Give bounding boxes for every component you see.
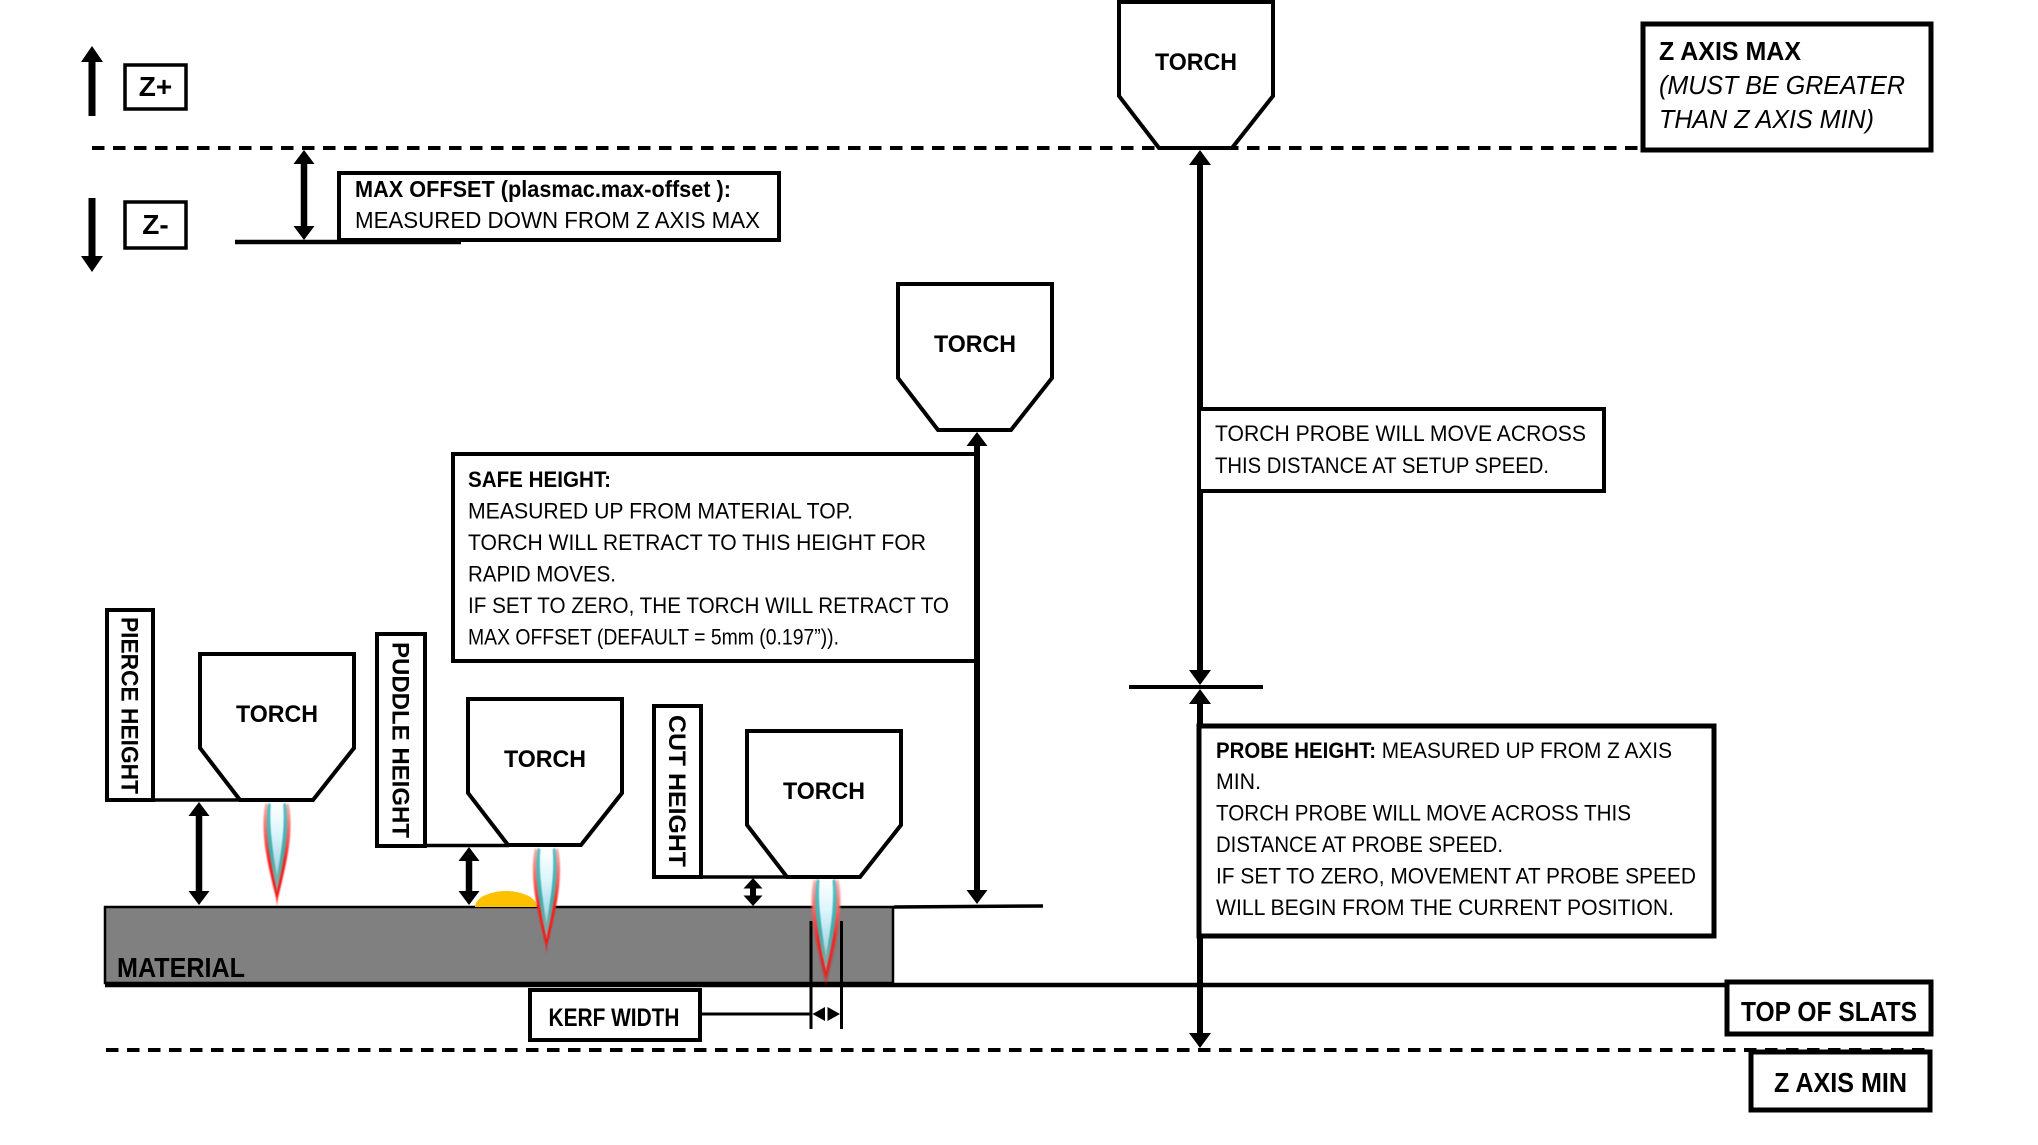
svg-text:PUDDLE HEIGHT: PUDDLE HEIGHT (387, 642, 414, 838)
svg-text:MAX OFFSET (DEFAULT = 5mm (0.1: MAX OFFSET (DEFAULT = 5mm (0.197”)). (468, 625, 839, 650)
svg-text:TORCH: TORCH (236, 701, 318, 728)
svg-text:TORCH PROBE WILL MOVE ACROSS T: TORCH PROBE WILL MOVE ACROSS THIS (1216, 801, 1631, 826)
svg-text:IF SET TO ZERO, MOVEMENT AT P: IF SET TO ZERO, MOVEMENT AT PROBE SPEED (1216, 864, 1696, 889)
svg-text:TORCH: TORCH (783, 778, 865, 805)
svg-text:THAN Z AXIS MIN): THAN Z AXIS MIN) (1659, 104, 1874, 134)
svg-text:CUT HEIGHT: CUT HEIGHT (663, 715, 690, 867)
svg-text:RAPID MOVES.: RAPID MOVES. (468, 562, 616, 587)
svg-text:IF SET TO ZERO, THE TORCH WILL: IF SET TO ZERO, THE TORCH WILL RETRACT T… (468, 593, 949, 618)
svg-text:Z+: Z+ (139, 71, 172, 102)
svg-text:(MUST BE GREATER: (MUST BE GREATER (1659, 70, 1905, 100)
svg-text:TORCH: TORCH (934, 331, 1016, 358)
svg-text:Z AXIS MAX: Z AXIS MAX (1659, 36, 1802, 66)
svg-text:PIERCE HEIGHT: PIERCE HEIGHT (116, 617, 143, 794)
svg-text:TORCH PROBE WILL MOVE ACROSS: TORCH PROBE WILL MOVE ACROSS (1215, 421, 1586, 446)
svg-text:TOP OF SLATS: TOP OF SLATS (1741, 996, 1917, 1027)
svg-text:KERF WIDTH: KERF WIDTH (549, 1004, 680, 1032)
svg-text:Z AXIS MIN: Z AXIS MIN (1774, 1067, 1907, 1098)
svg-text:SAFE HEIGHT:: SAFE HEIGHT: (468, 467, 611, 492)
svg-text:TORCH WILL RETRACT TO THIS HEI: TORCH WILL RETRACT TO THIS HEIGHT FOR (468, 530, 926, 555)
svg-text:MEASURED DOWN FROM Z AXIS MAX: MEASURED DOWN FROM Z AXIS MAX (355, 207, 760, 233)
svg-text:PROBE HEIGHT: MEASURED UP FROM: PROBE HEIGHT: MEASURED UP FROM Z AXIS (1216, 738, 1672, 763)
svg-text:MAX OFFSET (plasmac.max-offset: MAX OFFSET (plasmac.max-offset ): (355, 176, 731, 202)
svg-text:Z-: Z- (142, 209, 168, 240)
svg-text:TORCH: TORCH (504, 746, 586, 773)
svg-text:TORCH: TORCH (1155, 49, 1237, 76)
svg-text:DISTANCE AT PROBE SPEED.: DISTANCE AT PROBE SPEED. (1216, 832, 1503, 857)
svg-text:WILL BEGIN FROM THE CURRENT PO: WILL BEGIN FROM THE CURRENT POSITION. (1216, 895, 1674, 920)
svg-text:THIS DISTANCE AT SETUP SPEED.: THIS DISTANCE AT SETUP SPEED. (1215, 453, 1549, 478)
svg-text:MIN.: MIN. (1216, 769, 1261, 794)
svg-text:MEASURED UP FROM MATERIAL TOP.: MEASURED UP FROM MATERIAL TOP. (468, 499, 853, 524)
svg-text:MATERIAL: MATERIAL (117, 952, 245, 983)
